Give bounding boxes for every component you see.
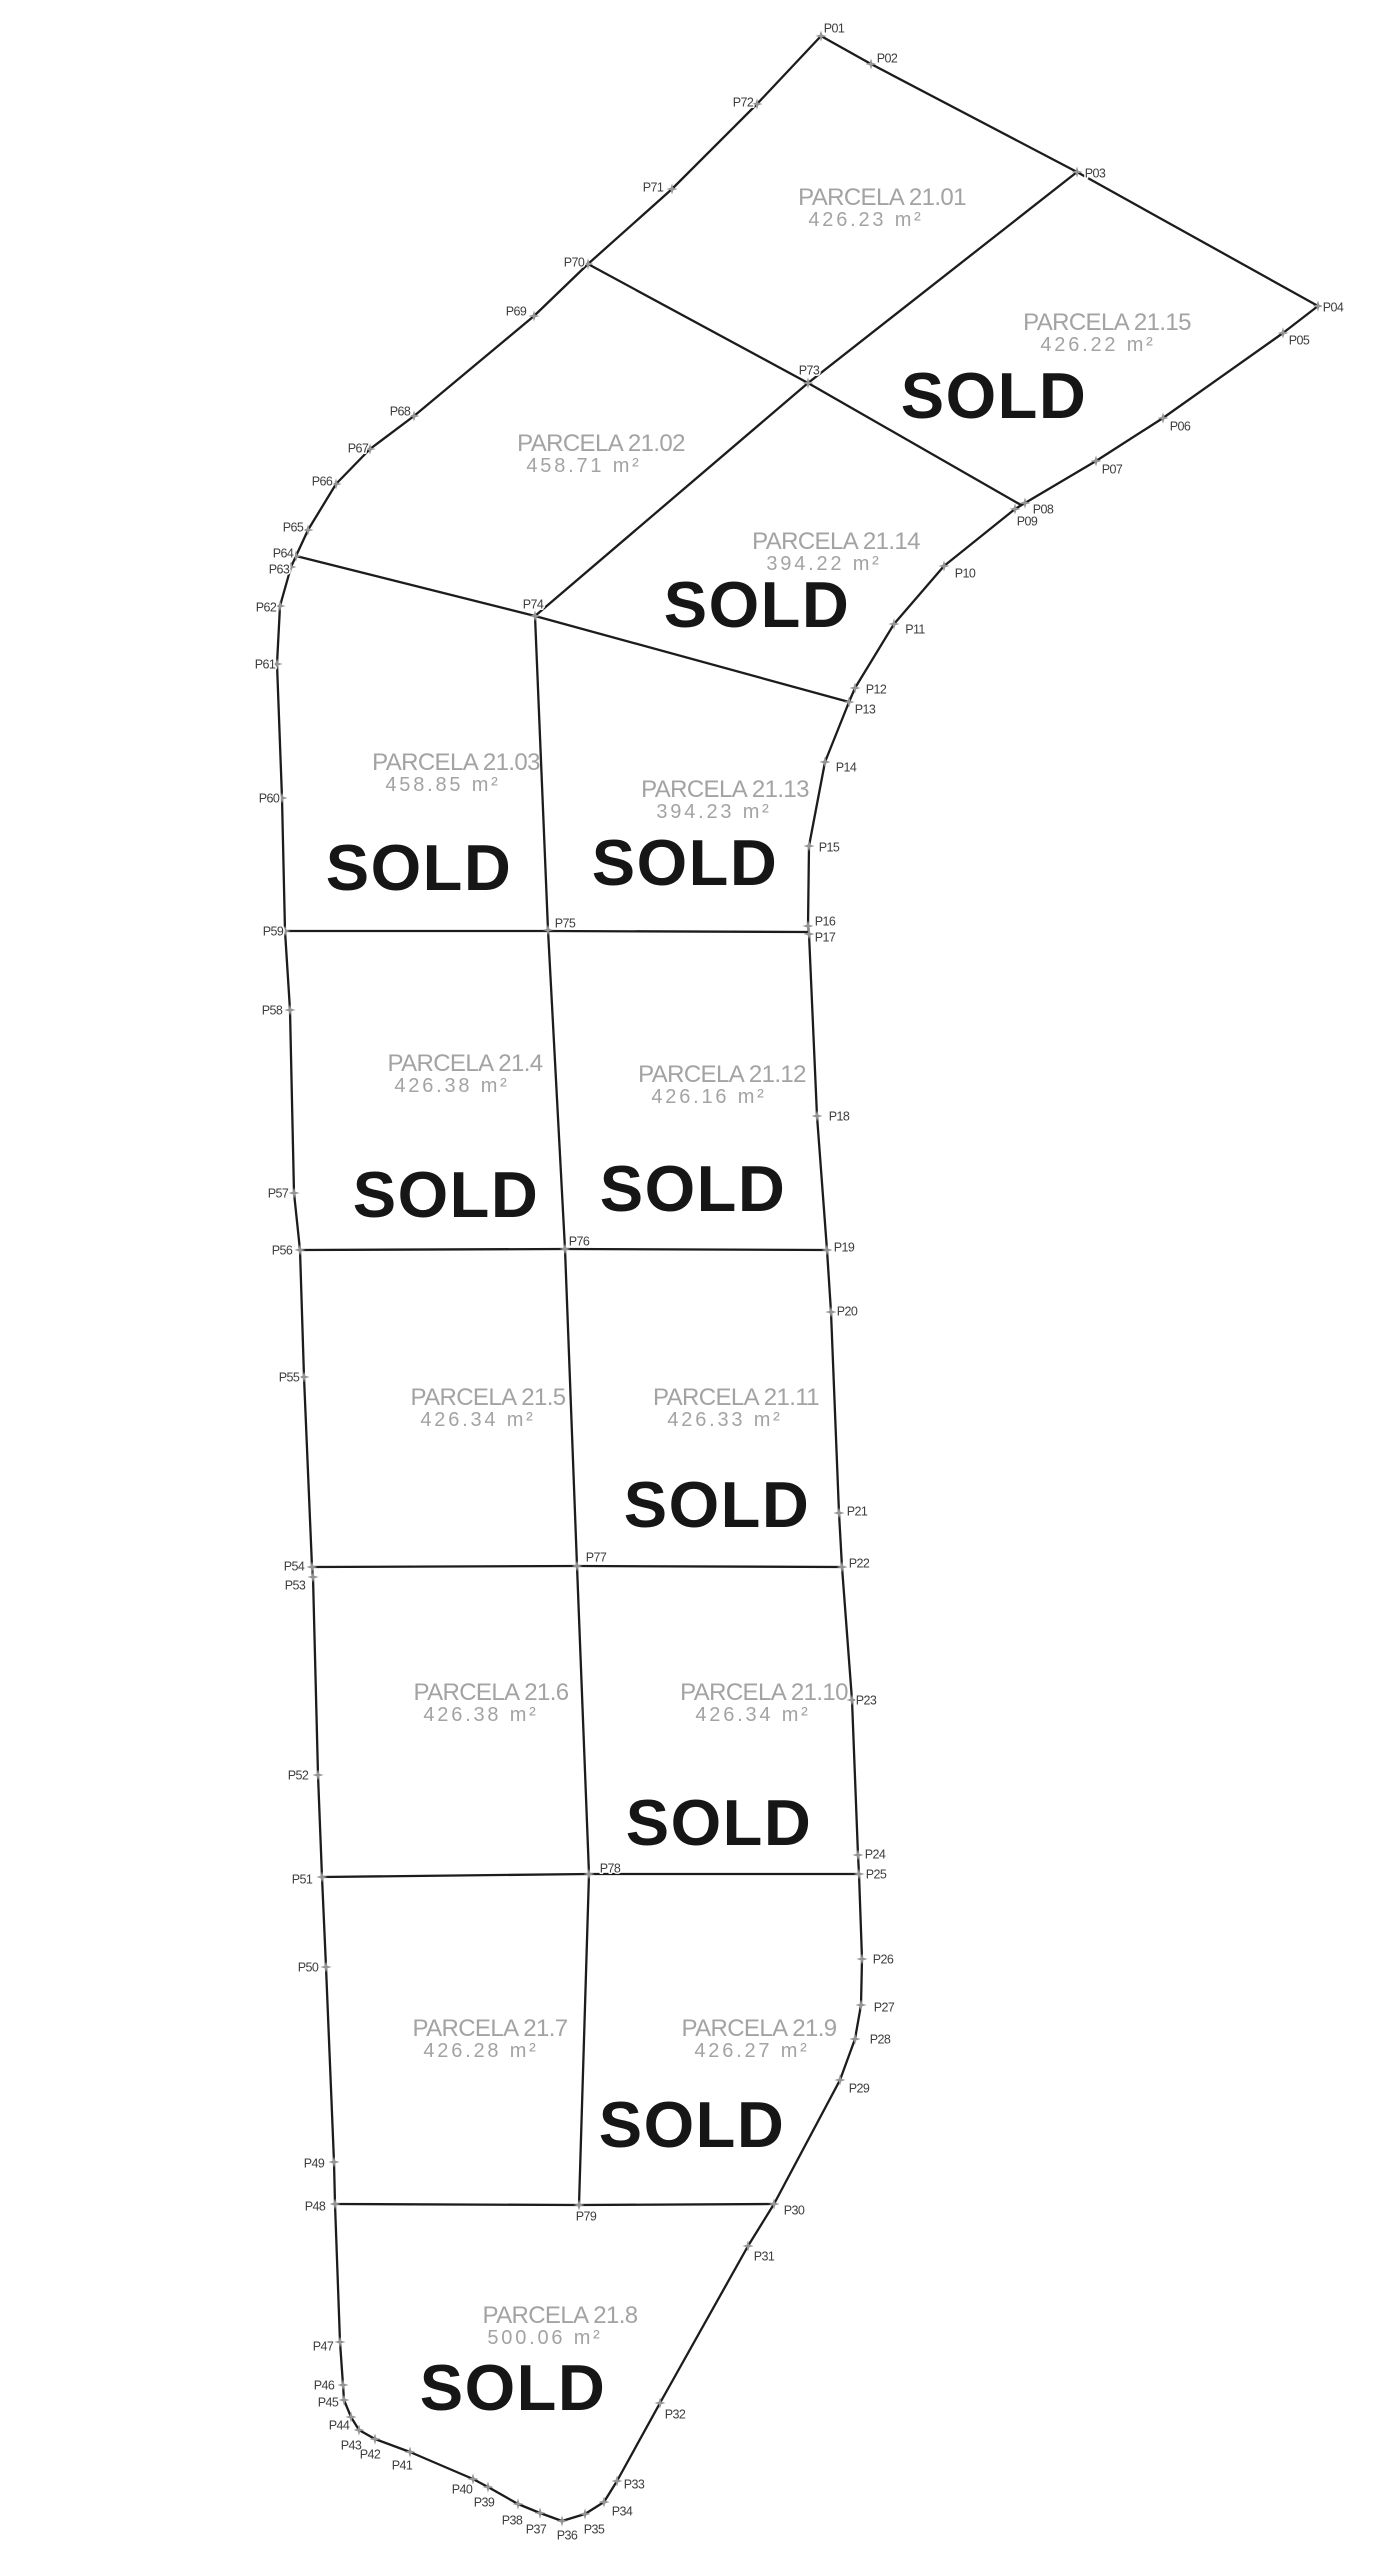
svg-text:P04: P04: [1323, 301, 1344, 315]
svg-text:SOLD: SOLD: [599, 2088, 786, 2161]
svg-text:P79: P79: [576, 2210, 597, 2224]
svg-text:P47: P47: [313, 2340, 334, 2354]
svg-text:P27: P27: [874, 2001, 895, 2015]
svg-text:P65: P65: [283, 521, 304, 535]
svg-text:PARCELA 21.4: PARCELA 21.4: [387, 1050, 542, 1077]
svg-text:SOLD: SOLD: [353, 1158, 540, 1231]
svg-text:P55: P55: [279, 1371, 300, 1385]
svg-text:P71: P71: [643, 181, 664, 195]
svg-text:P12: P12: [866, 683, 887, 697]
svg-text:SOLD: SOLD: [626, 1786, 813, 1859]
svg-text:PARCELA 21.14: PARCELA 21.14: [752, 528, 920, 555]
svg-text:PARCELA 21.6: PARCELA 21.6: [413, 1679, 568, 1706]
svg-text:SOLD: SOLD: [600, 1152, 787, 1225]
svg-text:P36: P36: [557, 2529, 578, 2543]
svg-text:SOLD: SOLD: [664, 568, 851, 641]
svg-text:SOLD: SOLD: [901, 359, 1088, 432]
svg-text:P38: P38: [502, 2514, 523, 2528]
svg-text:SOLD: SOLD: [624, 1468, 811, 1541]
svg-text:P07: P07: [1102, 463, 1123, 477]
svg-text:P35: P35: [584, 2523, 605, 2537]
svg-text:P01: P01: [824, 22, 845, 36]
svg-text:P33: P33: [624, 2478, 645, 2492]
svg-text:P42: P42: [360, 2448, 381, 2462]
svg-text:426.28 m²: 426.28 m²: [423, 2040, 538, 2062]
svg-text:426.16 m²: 426.16 m²: [651, 1086, 766, 1108]
svg-text:PARCELA 21.11: PARCELA 21.11: [653, 1384, 819, 1411]
svg-text:P57: P57: [268, 1187, 289, 1201]
svg-text:P51: P51: [292, 1873, 313, 1887]
svg-text:PARCELA 21.03: PARCELA 21.03: [372, 749, 540, 776]
svg-text:PARCELA 21.5: PARCELA 21.5: [410, 1384, 565, 1411]
svg-text:SOLD: SOLD: [420, 2351, 607, 2424]
svg-text:P60: P60: [259, 792, 280, 806]
svg-text:P44: P44: [329, 2419, 350, 2433]
svg-text:P67: P67: [348, 442, 369, 456]
svg-text:P78: P78: [600, 1862, 621, 1876]
svg-text:P76: P76: [569, 1235, 590, 1249]
svg-text:P39: P39: [474, 2496, 495, 2510]
svg-text:P14: P14: [836, 761, 857, 775]
svg-text:P66: P66: [312, 475, 333, 489]
svg-text:500.06 m²: 500.06 m²: [487, 2327, 602, 2349]
svg-text:P16: P16: [815, 915, 836, 929]
svg-text:P18: P18: [829, 1110, 850, 1124]
svg-text:426.23 m²: 426.23 m²: [808, 209, 923, 231]
svg-text:426.34 m²: 426.34 m²: [420, 1409, 535, 1431]
svg-text:P54: P54: [284, 1560, 305, 1574]
svg-text:P31: P31: [754, 2250, 775, 2264]
svg-text:P23: P23: [856, 1694, 877, 1708]
svg-text:P09: P09: [1017, 515, 1038, 529]
svg-text:P21: P21: [847, 1505, 868, 1519]
svg-text:394.23 m²: 394.23 m²: [656, 801, 771, 823]
svg-text:P69: P69: [506, 305, 527, 319]
svg-text:P24: P24: [865, 1848, 886, 1862]
svg-text:426.34 m²: 426.34 m²: [695, 1704, 810, 1726]
svg-text:P41: P41: [392, 2459, 413, 2473]
svg-text:458.71 m²: 458.71 m²: [526, 455, 641, 477]
svg-text:426.27 m²: 426.27 m²: [694, 2040, 809, 2062]
svg-text:P05: P05: [1289, 334, 1310, 348]
svg-text:P30: P30: [784, 2204, 805, 2218]
svg-text:PARCELA 21.13: PARCELA 21.13: [641, 776, 809, 803]
svg-text:P22: P22: [849, 1557, 870, 1571]
svg-text:P50: P50: [298, 1961, 319, 1975]
svg-text:P75: P75: [555, 917, 576, 931]
svg-text:P68: P68: [390, 405, 411, 419]
svg-text:PARCELA 21.9: PARCELA 21.9: [681, 2015, 836, 2042]
svg-text:P03: P03: [1085, 167, 1106, 181]
svg-text:P64: P64: [273, 547, 294, 561]
svg-text:P29: P29: [849, 2082, 870, 2096]
svg-text:P56: P56: [272, 1244, 293, 1258]
svg-text:PARCELA 21.7: PARCELA 21.7: [412, 2015, 567, 2042]
svg-text:P17: P17: [815, 931, 836, 945]
svg-text:SOLD: SOLD: [326, 831, 513, 904]
svg-text:P62: P62: [256, 601, 277, 615]
svg-text:P72: P72: [733, 96, 754, 110]
svg-text:P70: P70: [564, 256, 585, 270]
svg-text:P40: P40: [452, 2483, 473, 2497]
svg-text:PARCELA 21.12: PARCELA 21.12: [638, 1061, 806, 1088]
svg-text:426.33 m²: 426.33 m²: [667, 1409, 782, 1431]
svg-text:P28: P28: [870, 2033, 891, 2047]
svg-text:P10: P10: [955, 567, 976, 581]
svg-text:PARCELA 21.10: PARCELA 21.10: [680, 1679, 848, 1706]
svg-text:P53: P53: [285, 1579, 306, 1593]
svg-text:PARCELA 21.8: PARCELA 21.8: [482, 2302, 637, 2329]
svg-text:P77: P77: [586, 1551, 607, 1565]
svg-text:P45: P45: [318, 2396, 339, 2410]
svg-text:P13: P13: [855, 703, 876, 717]
svg-text:426.38 m²: 426.38 m²: [423, 1704, 538, 1726]
svg-text:P19: P19: [834, 1241, 855, 1255]
svg-text:P15: P15: [819, 841, 840, 855]
svg-text:P73: P73: [799, 364, 820, 378]
svg-text:P46: P46: [314, 2379, 335, 2393]
svg-text:P59: P59: [263, 925, 284, 939]
svg-text:PARCELA 21.02: PARCELA 21.02: [517, 430, 685, 457]
svg-text:P43: P43: [341, 2439, 362, 2453]
svg-text:P61: P61: [255, 658, 276, 672]
svg-text:426.22 m²: 426.22 m²: [1040, 334, 1155, 356]
svg-text:P52: P52: [288, 1769, 309, 1783]
svg-text:SOLD: SOLD: [592, 826, 779, 899]
svg-text:P06: P06: [1170, 420, 1191, 434]
svg-text:P63: P63: [269, 563, 290, 577]
svg-text:P32: P32: [665, 2408, 686, 2422]
svg-text:P58: P58: [262, 1004, 283, 1018]
svg-text:P34: P34: [612, 2505, 633, 2519]
svg-text:PARCELA 21.15: PARCELA 21.15: [1023, 309, 1191, 336]
svg-text:P49: P49: [304, 2157, 325, 2171]
svg-text:P20: P20: [837, 1305, 858, 1319]
svg-text:P37: P37: [526, 2523, 547, 2537]
svg-text:P02: P02: [877, 52, 898, 66]
svg-text:P26: P26: [873, 1953, 894, 1967]
svg-text:426.38 m²: 426.38 m²: [394, 1075, 509, 1097]
svg-text:P48: P48: [305, 2200, 326, 2214]
svg-text:P25: P25: [866, 1868, 887, 1882]
svg-text:P74: P74: [523, 598, 544, 612]
svg-text:458.85 m²: 458.85 m²: [385, 774, 500, 796]
svg-text:P11: P11: [905, 623, 925, 637]
svg-text:PARCELA 21.01: PARCELA 21.01: [798, 184, 966, 211]
